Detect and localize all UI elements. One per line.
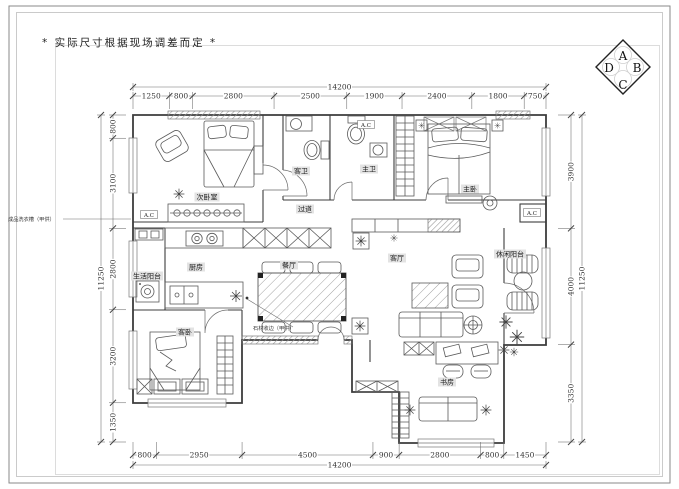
toilet-master-bath [348,116,366,144]
room-label: 次卧室 [195,193,220,202]
floor-plan-drawing: * 实际尺寸根据现场调差而定 * A B C D [0,0,679,489]
vanity-guest-bath [286,116,312,131]
dimension-text: 11250 [577,266,586,290]
double-bed-bedroom1 [204,121,263,187]
annotation: A.C [141,211,158,219]
dimension-text: 过道 [298,205,312,214]
dimension-text: 休闲阳台 [496,250,524,259]
dimension-text: 书房 [440,378,454,387]
dimension-text: 800 [485,450,500,459]
dimension-text: 3200 [108,346,117,365]
dimension-text: 1250 [142,91,161,100]
plant-icon [405,405,416,416]
doors [205,165,534,340]
dimension-text: 900 [379,450,394,459]
dimension-text: 3100 [108,174,117,193]
dim-chain-top: 12508002800250019002400180075014200 [130,82,549,109]
bookshelf [392,392,409,438]
room-label: 客厅 [388,254,406,263]
dimension-text: 1450 [515,450,534,459]
compass-letter-b: B [633,61,642,75]
window-bottom-bedroom2 [148,399,226,407]
window-right-master [542,128,550,196]
dimension-text: 2400 [427,91,446,100]
vanity-master-bath [370,143,387,157]
plant-icon [499,315,512,328]
room-label: 客卫 [292,167,310,176]
dimension-text: 客卧 [178,328,192,337]
study-sofa [419,397,477,421]
dimension-text: 客卫 [294,167,308,176]
plant-icon [510,330,524,344]
bedroom2-cabinets [137,379,208,394]
dimension-text: A.C [143,213,154,219]
dimension-text: 4000 [566,277,575,296]
room-label: 客卧 [176,328,194,337]
dimension-text: 次卧室 [197,193,218,202]
dimension-text: 2950 [190,450,209,459]
dim-chain-right: 39004000335011250 [558,112,586,445]
dimension-text: 2800 [108,259,117,278]
plant-icon [419,123,425,129]
dimension-text: 2800 [430,450,449,459]
dimension-text: 1350 [108,413,117,432]
dimension-text: 800 [108,119,117,134]
study-cabinet [404,342,434,355]
dimension-text: 生活阳台 [133,272,161,281]
washing-machine [136,281,159,302]
window-bottom-study [418,439,494,447]
plant-icon [356,236,367,247]
double-sink [170,286,198,304]
dining-chairs-top [262,262,341,273]
adjustment-note: * 实际尺寸根据现场调差而定 * [42,36,217,49]
dimension-text: 成品洗衣槽（甲供） [8,215,55,223]
dimension-text: 1800 [488,91,507,100]
room-label: 生活阳台 [131,272,163,281]
dimension-text: 14200 [328,460,352,469]
plant-icon [495,123,501,129]
wall-piers [168,111,530,344]
window-right-balcony [542,248,550,338]
desk-chair [443,365,463,378]
toilet-guest-bath [304,141,329,160]
room-label: 厨房 [187,263,205,272]
sofa [399,312,463,337]
armchair [452,255,483,278]
dim-chain-left: 800310028003200135011250 [96,112,126,445]
dimension-text: 750 [528,91,543,100]
plant-icon [230,290,242,302]
compass-letter-d: D [604,61,614,75]
room-label: 书房 [438,378,456,387]
dimension-text: 石材收边（甲供） [253,324,295,332]
closet-shelving [396,116,414,196]
side-table [464,316,482,334]
plant-icon [355,321,366,332]
room-label: 主卧 [461,185,479,194]
stool [483,196,497,210]
dimension-text: 800 [137,450,152,459]
dimension-text: A.C [360,123,371,129]
room-label: 休闲阳台 [494,250,526,259]
double-bed-master [428,124,490,194]
desk-chair [471,365,491,378]
annotation: 石材收边（甲供） [253,324,295,332]
shoe-cabinet [356,381,398,392]
dimension-text: 4500 [298,450,317,459]
dimension-text: 3900 [566,162,575,181]
dimension-text: 客厅 [390,254,404,263]
cooktop [186,231,223,246]
plant-icon [499,345,510,356]
annotation: 成品洗衣槽（甲供） [8,215,55,223]
plant-icon [390,234,397,241]
drawing-page: * 实际尺寸根据现场调差而定 * A B C D [0,0,679,489]
dimension-text: 主卫 [362,165,376,174]
dimension-text: 厨房 [189,263,203,272]
room-label: 餐厅 [280,261,298,270]
wardrobe-bedroom1 [168,204,244,222]
laundry-cabinet [135,229,163,240]
desk [436,342,498,364]
plant-icon [174,189,185,200]
dimension-text: 2500 [301,91,320,100]
annotation: A.C [524,209,541,217]
kitchen-cabinets [243,228,331,248]
annotation: A.C [358,121,375,129]
dimension-text: 餐厅 [282,261,296,270]
plant-icon [510,348,518,356]
compass-letter-a: A [618,49,628,63]
dimension-text: A.C [526,211,537,217]
wardrobe-bedroom2 [217,336,233,394]
balcony-table [514,272,532,290]
double-bed-bedroom2 [150,332,200,390]
compass-rose: A B C D [596,40,650,94]
armchair [452,285,483,308]
compass-letter-c: C [618,78,627,92]
room-label: 主卫 [360,165,378,174]
window-left-bedroom2 [129,331,137,389]
dimension-text: 1900 [365,91,384,100]
room-label: 过道 [296,205,314,214]
armchair-bedroom1 [154,129,190,164]
dimension-text: 800 [174,91,189,100]
dimension-text: 3350 [566,384,575,403]
tv-cabinet [352,219,460,232]
dimension-text: 11250 [96,266,105,290]
coffee-table [412,283,448,308]
dimension-text: 14200 [328,82,352,91]
dimension-text: 2800 [224,91,243,100]
plant-icon [481,405,492,416]
window-left-bedroom1 [129,138,137,193]
dimension-text: 主卧 [463,185,477,194]
